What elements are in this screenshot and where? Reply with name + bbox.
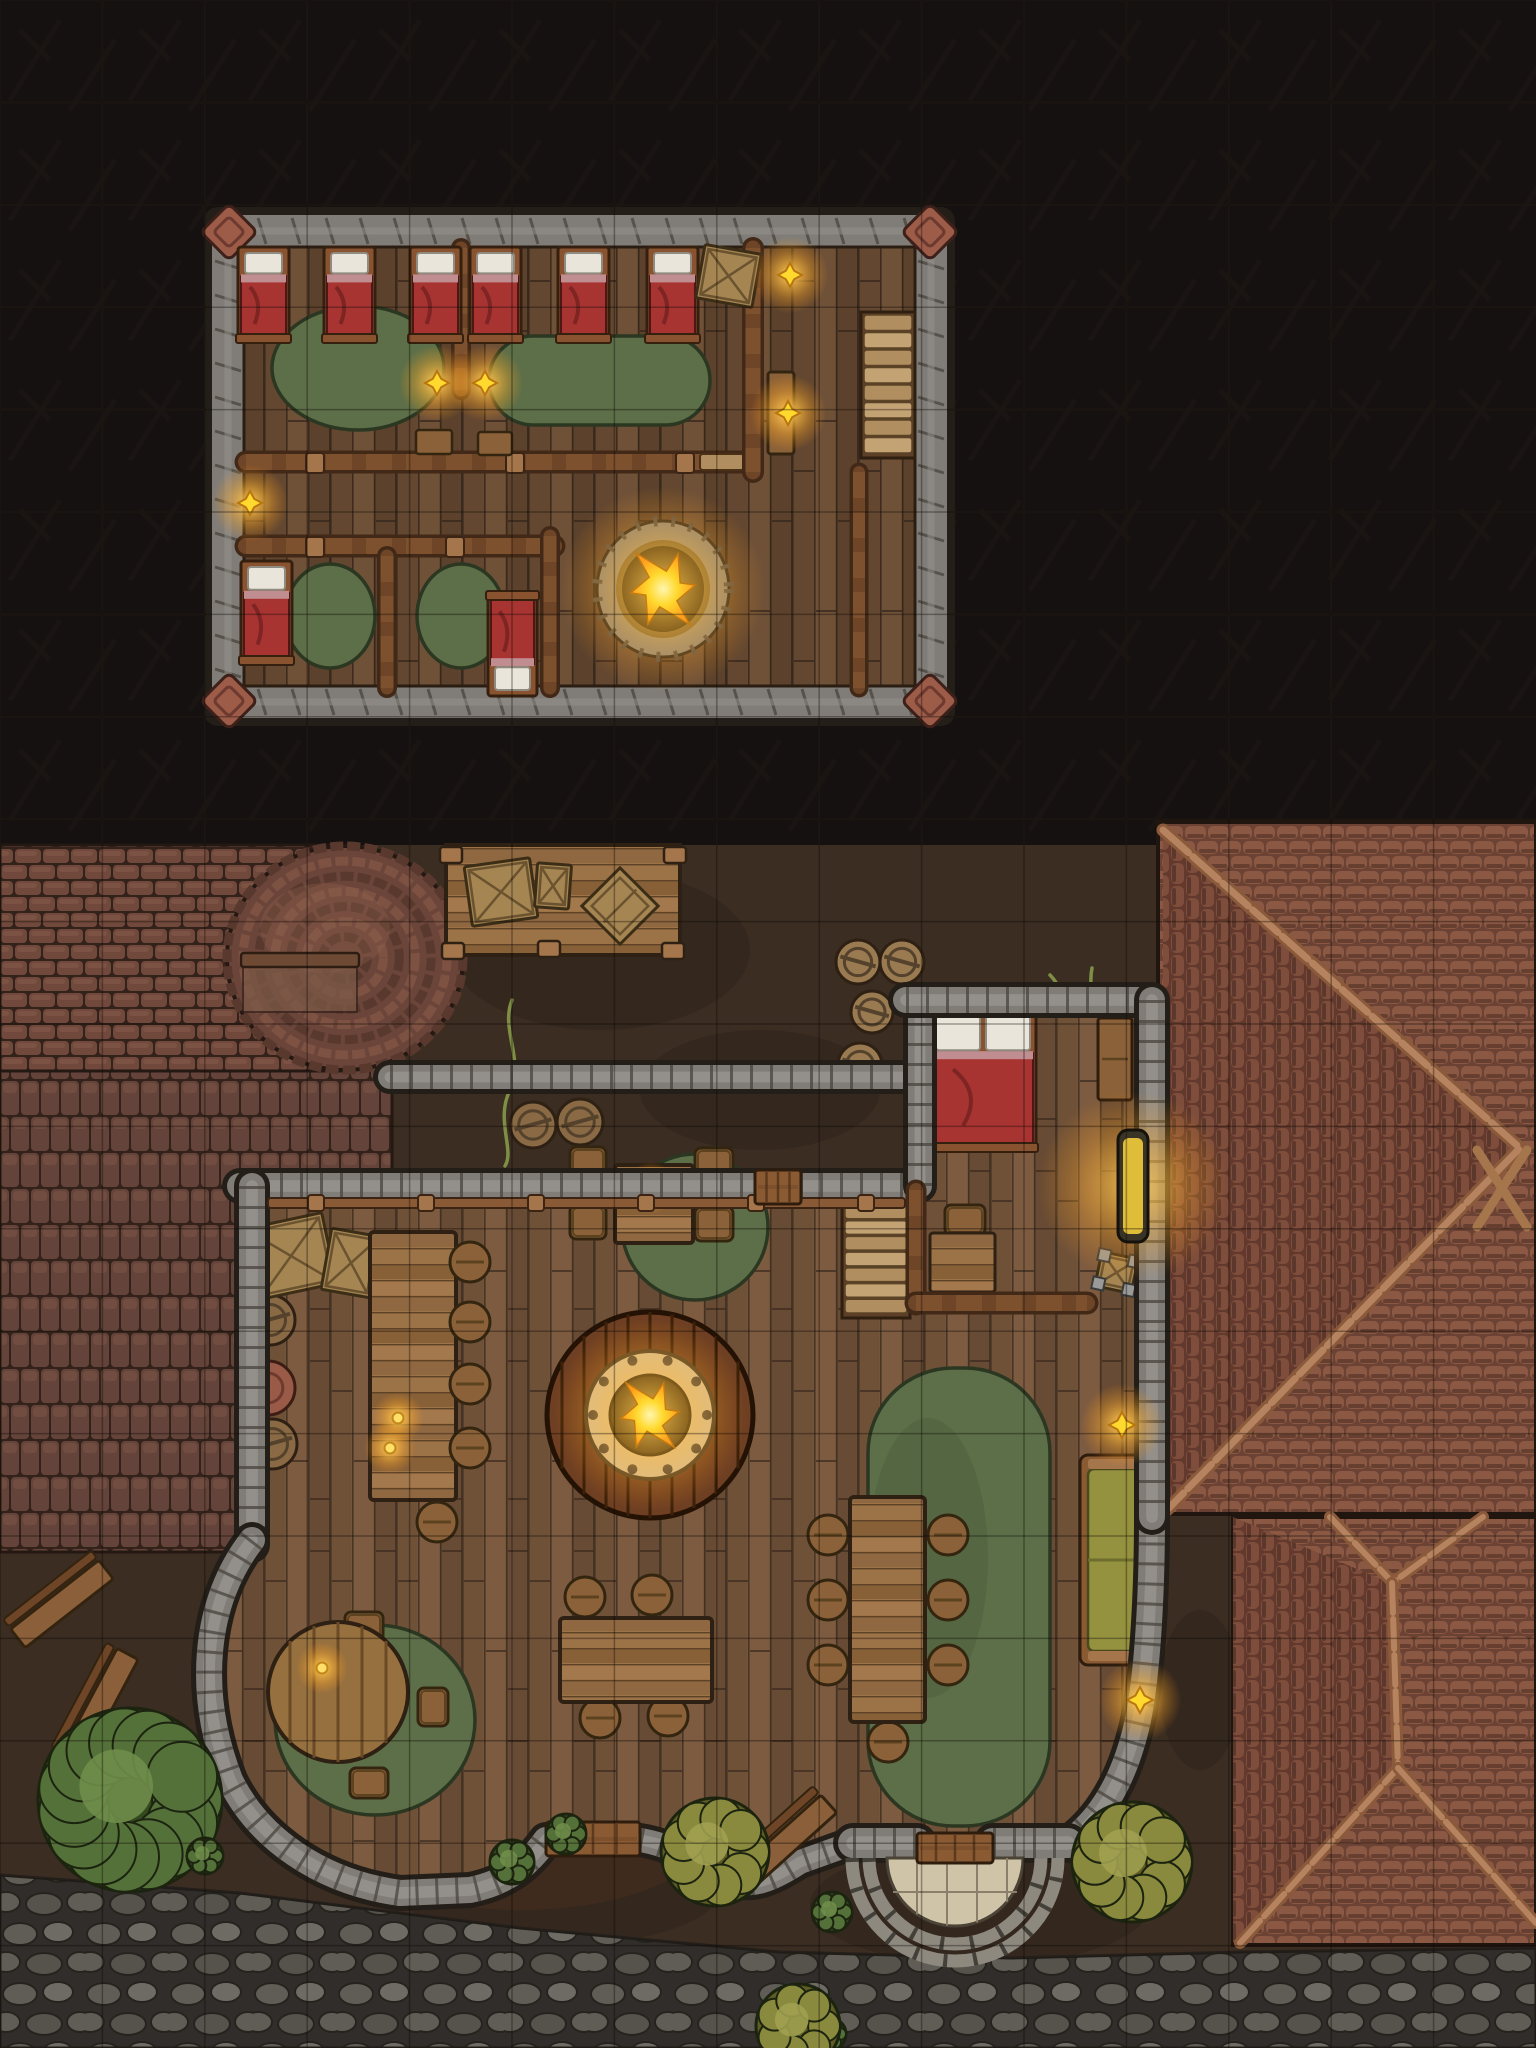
wicker-barrel — [851, 991, 893, 1033]
bed-board — [322, 334, 377, 343]
bed-board — [236, 334, 291, 343]
bush-top — [555, 1823, 571, 1839]
bush-blob — [147, 1742, 217, 1812]
platform-post — [662, 943, 684, 959]
loading-platform — [440, 845, 686, 959]
beam-cap — [528, 1195, 544, 1211]
beam-cap — [306, 537, 324, 557]
pillow — [477, 253, 514, 273]
small-bench — [478, 432, 512, 455]
stair-tread — [845, 1221, 907, 1235]
chair — [945, 1205, 985, 1235]
bed-board — [408, 334, 463, 343]
olive-bush — [1072, 1802, 1192, 1922]
chair — [418, 1688, 448, 1726]
brick-kiln — [0, 845, 463, 1071]
beam-cap — [638, 1195, 654, 1211]
bed-board — [468, 334, 523, 343]
platform-post — [538, 941, 560, 957]
bush-top — [79, 1749, 153, 1823]
wall-lantern — [1038, 1091, 1228, 1281]
pillow — [245, 253, 282, 273]
platform-post — [440, 847, 462, 863]
stair-tread — [864, 420, 912, 436]
candle-flame — [393, 1413, 404, 1424]
platform-post — [442, 943, 464, 959]
pillow-band — [241, 274, 286, 282]
pillow — [248, 567, 285, 590]
central-fire-pit — [547, 1312, 753, 1518]
small-bench — [416, 430, 452, 454]
bush-top — [1099, 1829, 1147, 1877]
pillow — [565, 253, 602, 273]
beam-cap — [306, 453, 324, 473]
beam-cap — [858, 1195, 874, 1211]
back-door — [755, 1170, 801, 1204]
stair-tread — [864, 385, 912, 401]
chair-seat — [695, 1207, 733, 1241]
upper-floor — [201, 204, 959, 730]
pillow-band — [244, 591, 289, 599]
pillow — [654, 253, 691, 273]
double-bed — [928, 1010, 1038, 1152]
beam-cap — [418, 1195, 434, 1211]
beam-trim — [268, 1195, 905, 1211]
pillow — [417, 253, 454, 273]
stool — [808, 1645, 848, 1685]
bed-blanket — [244, 593, 289, 660]
green-bush — [812, 1892, 852, 1932]
single-bed — [239, 561, 294, 665]
chair-seat — [418, 1688, 448, 1726]
beam-cap — [676, 453, 694, 473]
grid-dark-layer — [0, 0, 1536, 2048]
bush-top — [500, 1850, 518, 1868]
wall-lamp — [750, 375, 827, 452]
bush-top — [195, 1846, 209, 1860]
stair-tread — [864, 368, 912, 384]
bed-board — [556, 334, 611, 343]
stool — [928, 1580, 968, 1620]
chimney-fire-hole — [560, 486, 765, 691]
stair-tread — [845, 1299, 907, 1313]
chair-seat — [350, 1768, 388, 1798]
kiln-ledge-beam — [241, 953, 359, 967]
stair-tread — [845, 1268, 907, 1282]
stair-tread — [845, 1252, 907, 1266]
rect-table — [560, 1618, 712, 1702]
stair-tread — [845, 1284, 907, 1298]
stair-tread — [845, 1236, 907, 1250]
pillow — [936, 1016, 980, 1050]
bed-board — [645, 334, 700, 343]
desk-chest — [930, 1233, 995, 1292]
candle-flame — [385, 1443, 396, 1454]
ground-level — [0, 822, 1536, 2048]
pillow — [331, 253, 368, 273]
beam — [268, 1198, 905, 1208]
stool — [565, 1577, 605, 1617]
crate-corner-metal — [1122, 1283, 1136, 1297]
stair-tread — [864, 350, 912, 366]
stool — [928, 1645, 968, 1685]
chair-seat — [570, 1205, 606, 1239]
battle-map-stage[interactable] — [0, 0, 1536, 2048]
stair-tread — [864, 315, 912, 331]
stool — [450, 1242, 490, 1282]
kiln-recess — [243, 967, 357, 1012]
beam-cap — [308, 1195, 324, 1211]
crate-corner-metal — [1091, 1276, 1105, 1290]
platform-post — [664, 847, 686, 863]
green-bush — [546, 1814, 586, 1854]
long-table — [850, 1497, 925, 1722]
stairs — [842, 1202, 910, 1318]
single-bed — [236, 247, 291, 343]
wood-barrel — [557, 1099, 603, 1145]
pillow-band — [327, 274, 372, 282]
chair-seat — [945, 1205, 985, 1235]
olive-bush — [661, 1798, 769, 1906]
pillow-band — [413, 274, 458, 282]
stool — [808, 1580, 848, 1620]
chair — [570, 1205, 606, 1239]
single-bed — [645, 247, 700, 343]
stool — [928, 1515, 968, 1555]
bush-top — [775, 2003, 809, 2037]
interior-door — [700, 454, 744, 470]
wicker-barrel — [880, 940, 924, 984]
crate — [696, 244, 762, 307]
wall-lamp — [1098, 1658, 1181, 1741]
stairs — [861, 312, 915, 458]
stool — [450, 1364, 490, 1404]
single-bed — [556, 247, 611, 343]
pillow-band — [650, 274, 695, 282]
single-bed — [468, 247, 523, 343]
pillow-band — [933, 1051, 1033, 1059]
crate — [535, 863, 572, 909]
table-candle — [364, 1422, 416, 1474]
single-bed — [322, 247, 377, 343]
wall-lamp — [212, 465, 289, 542]
front-door — [917, 1833, 993, 1863]
bed-blanket — [933, 1053, 1033, 1147]
single-bed — [408, 247, 463, 343]
stool — [450, 1302, 490, 1342]
table-candle — [296, 1642, 348, 1694]
candle-flame — [317, 1663, 328, 1674]
bed-board — [239, 656, 294, 665]
wood-barrel — [510, 1102, 556, 1148]
bush-top — [821, 1901, 837, 1917]
chair — [350, 1768, 388, 1798]
stool — [808, 1515, 848, 1555]
wall-lamp — [752, 237, 829, 314]
pillow-band — [561, 274, 606, 282]
lower-roof — [1233, 1517, 1536, 1945]
chair — [695, 1207, 733, 1241]
beam-cap — [446, 537, 464, 557]
stair-tread — [864, 438, 912, 454]
stool — [868, 1722, 908, 1762]
bedroom-rug — [285, 564, 375, 668]
stair-tread — [864, 333, 912, 349]
wall-lamp — [1080, 1383, 1163, 1466]
bed-board — [928, 1143, 1038, 1152]
wicker-barrel — [836, 940, 880, 984]
stool — [632, 1575, 672, 1615]
crate — [464, 858, 538, 927]
map-canvas[interactable] — [0, 0, 1536, 2048]
